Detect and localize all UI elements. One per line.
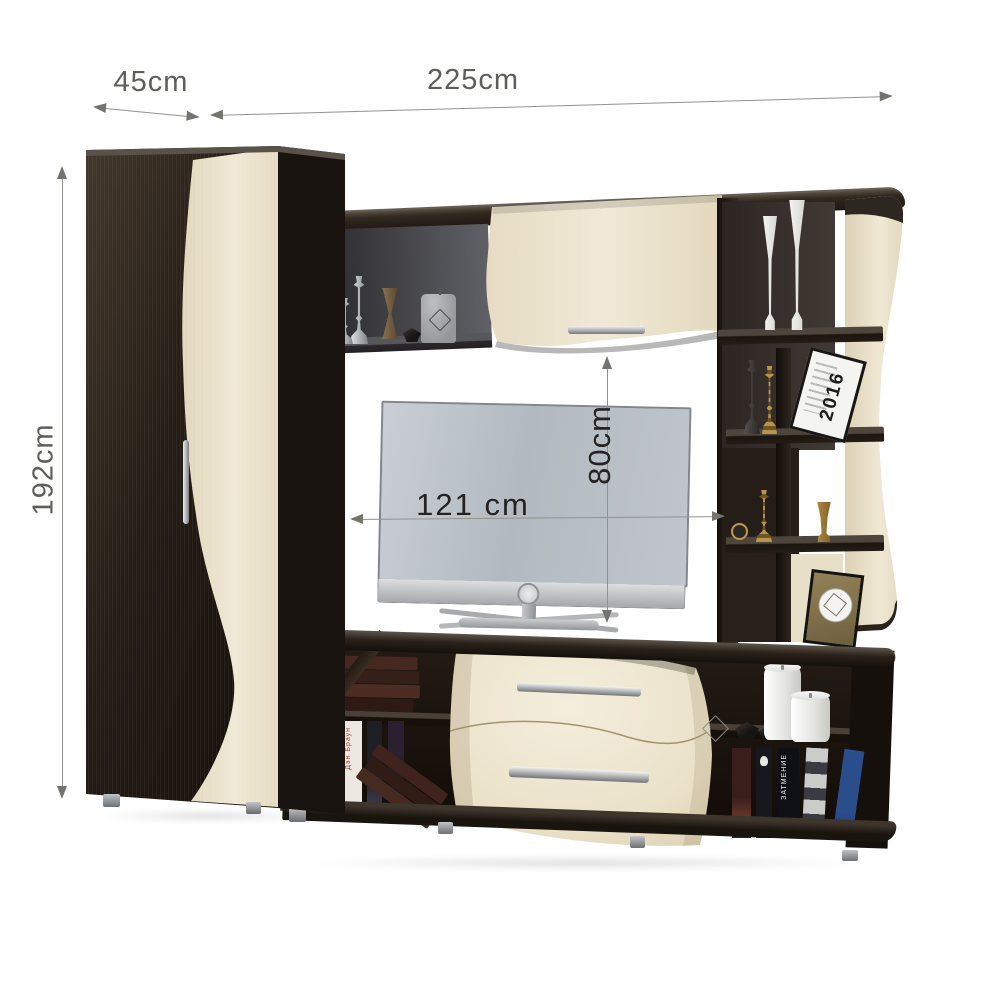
dimension-line-width bbox=[212, 96, 891, 116]
dimension-line-height bbox=[62, 168, 63, 797]
dimension-line-depth bbox=[95, 107, 198, 118]
height-dimension-label: 192cm bbox=[28, 415, 61, 525]
maple-flip-door bbox=[483, 192, 728, 357]
white-candle-short-decor bbox=[791, 695, 830, 742]
wardrobe-handle bbox=[183, 440, 189, 524]
floor-shadow bbox=[300, 856, 870, 870]
tv-stand-base bbox=[459, 617, 599, 630]
wardrobe-foot bbox=[103, 794, 120, 807]
wardrobe-shadow bbox=[95, 810, 320, 822]
depth-dimension-label: 45cm bbox=[101, 66, 201, 99]
product-dimension-image: 2016 Дэн Браун bbox=[0, 0, 1000, 1000]
door-handle bbox=[568, 326, 645, 334]
wardrobe bbox=[80, 138, 350, 828]
right-unit-shelf-3 bbox=[726, 535, 884, 553]
tv-height-dimension-label: 80cm bbox=[582, 390, 618, 500]
tv-width-dimension-label: 121 cm bbox=[383, 487, 563, 523]
geometric-art-frame bbox=[803, 569, 865, 649]
width-dimension-label: 225cm bbox=[393, 64, 553, 97]
bench-foot bbox=[630, 836, 645, 848]
book-title-right: ЗАТМЕНИЕ bbox=[781, 754, 788, 800]
wardrobe-side-face bbox=[278, 146, 345, 814]
right-unit-divider bbox=[776, 348, 791, 642]
bench-foot bbox=[438, 822, 453, 834]
pocket-watch-decor bbox=[731, 523, 748, 540]
right-unit-back-lower bbox=[722, 552, 781, 642]
gray-candle-decor bbox=[421, 294, 456, 343]
